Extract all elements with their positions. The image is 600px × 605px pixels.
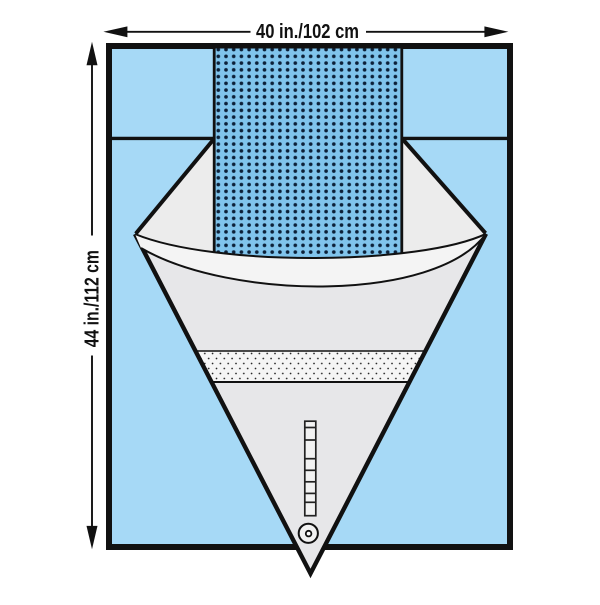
svg-text:40 in./102 cm: 40 in./102 cm [256, 21, 359, 43]
svg-text:44 in./112 cm: 44 in./112 cm [82, 250, 104, 347]
